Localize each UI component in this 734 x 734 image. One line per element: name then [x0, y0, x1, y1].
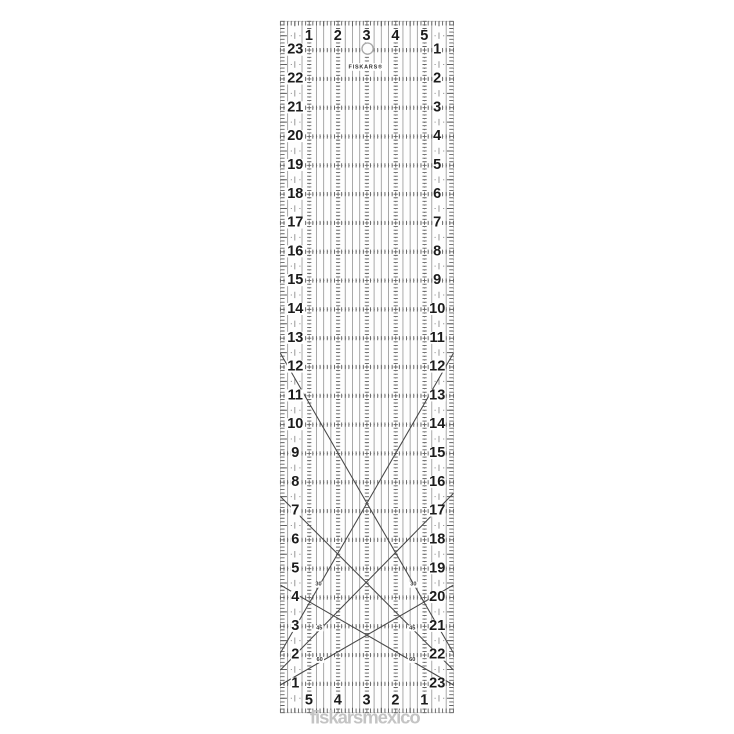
svg-text:1: 1 [305, 28, 313, 44]
svg-text:60: 60 [409, 657, 415, 663]
svg-text:7: 7 [433, 215, 441, 231]
svg-text:15: 15 [287, 272, 303, 288]
svg-text:1: 1 [420, 693, 428, 709]
svg-text:30: 30 [315, 582, 321, 588]
svg-text:4: 4 [291, 589, 299, 605]
svg-text:6: 6 [433, 186, 441, 202]
svg-text:13: 13 [287, 330, 303, 346]
svg-text:45: 45 [316, 625, 322, 631]
svg-text:5: 5 [291, 560, 299, 576]
svg-text:4: 4 [391, 28, 399, 44]
svg-text:10: 10 [287, 416, 303, 432]
svg-text:8: 8 [433, 243, 441, 259]
svg-text:9: 9 [291, 445, 299, 461]
svg-text:5: 5 [433, 157, 441, 173]
svg-text:13: 13 [429, 387, 445, 403]
svg-text:23: 23 [429, 675, 445, 691]
svg-text:18: 18 [429, 531, 445, 547]
svg-text:FISKARS®: FISKARS® [348, 63, 382, 70]
svg-text:2: 2 [291, 647, 299, 663]
svg-text:3: 3 [433, 99, 441, 115]
svg-text:9: 9 [433, 272, 441, 288]
svg-text:17: 17 [429, 503, 445, 519]
svg-text:10: 10 [429, 301, 445, 317]
svg-text:45: 45 [409, 625, 415, 631]
svg-text:23: 23 [287, 42, 303, 58]
svg-text:20: 20 [287, 128, 303, 144]
svg-text:16: 16 [287, 243, 303, 259]
svg-text:14: 14 [429, 416, 445, 432]
svg-text:3: 3 [291, 618, 299, 634]
svg-text:22: 22 [287, 71, 303, 87]
svg-text:3: 3 [363, 28, 371, 44]
svg-text:5: 5 [420, 28, 428, 44]
svg-text:21: 21 [287, 99, 303, 115]
svg-text:7: 7 [291, 503, 299, 519]
svg-text:17: 17 [287, 215, 303, 231]
svg-text:12: 12 [287, 359, 303, 375]
svg-text:2: 2 [433, 71, 441, 87]
svg-text:8: 8 [291, 474, 299, 490]
svg-text:21: 21 [429, 618, 445, 634]
svg-text:19: 19 [429, 560, 445, 576]
svg-text:19: 19 [287, 157, 303, 173]
svg-text:11: 11 [288, 387, 303, 403]
svg-text:4: 4 [433, 128, 441, 144]
svg-text:16: 16 [429, 474, 445, 490]
svg-text:18: 18 [287, 186, 303, 202]
svg-text:2: 2 [334, 28, 342, 44]
svg-text:15: 15 [429, 445, 445, 461]
svg-text:30: 30 [410, 582, 416, 588]
svg-text:20: 20 [429, 589, 445, 605]
svg-text:1: 1 [433, 42, 441, 58]
svg-text:1: 1 [291, 675, 299, 691]
svg-text:fiskarsmexico: fiskarsmexico [310, 707, 421, 728]
svg-text:22: 22 [429, 647, 445, 663]
svg-text:14: 14 [287, 301, 303, 317]
svg-text:60: 60 [316, 657, 322, 663]
svg-text:11: 11 [430, 330, 445, 346]
svg-text:6: 6 [291, 531, 299, 547]
svg-text:12: 12 [429, 359, 445, 375]
